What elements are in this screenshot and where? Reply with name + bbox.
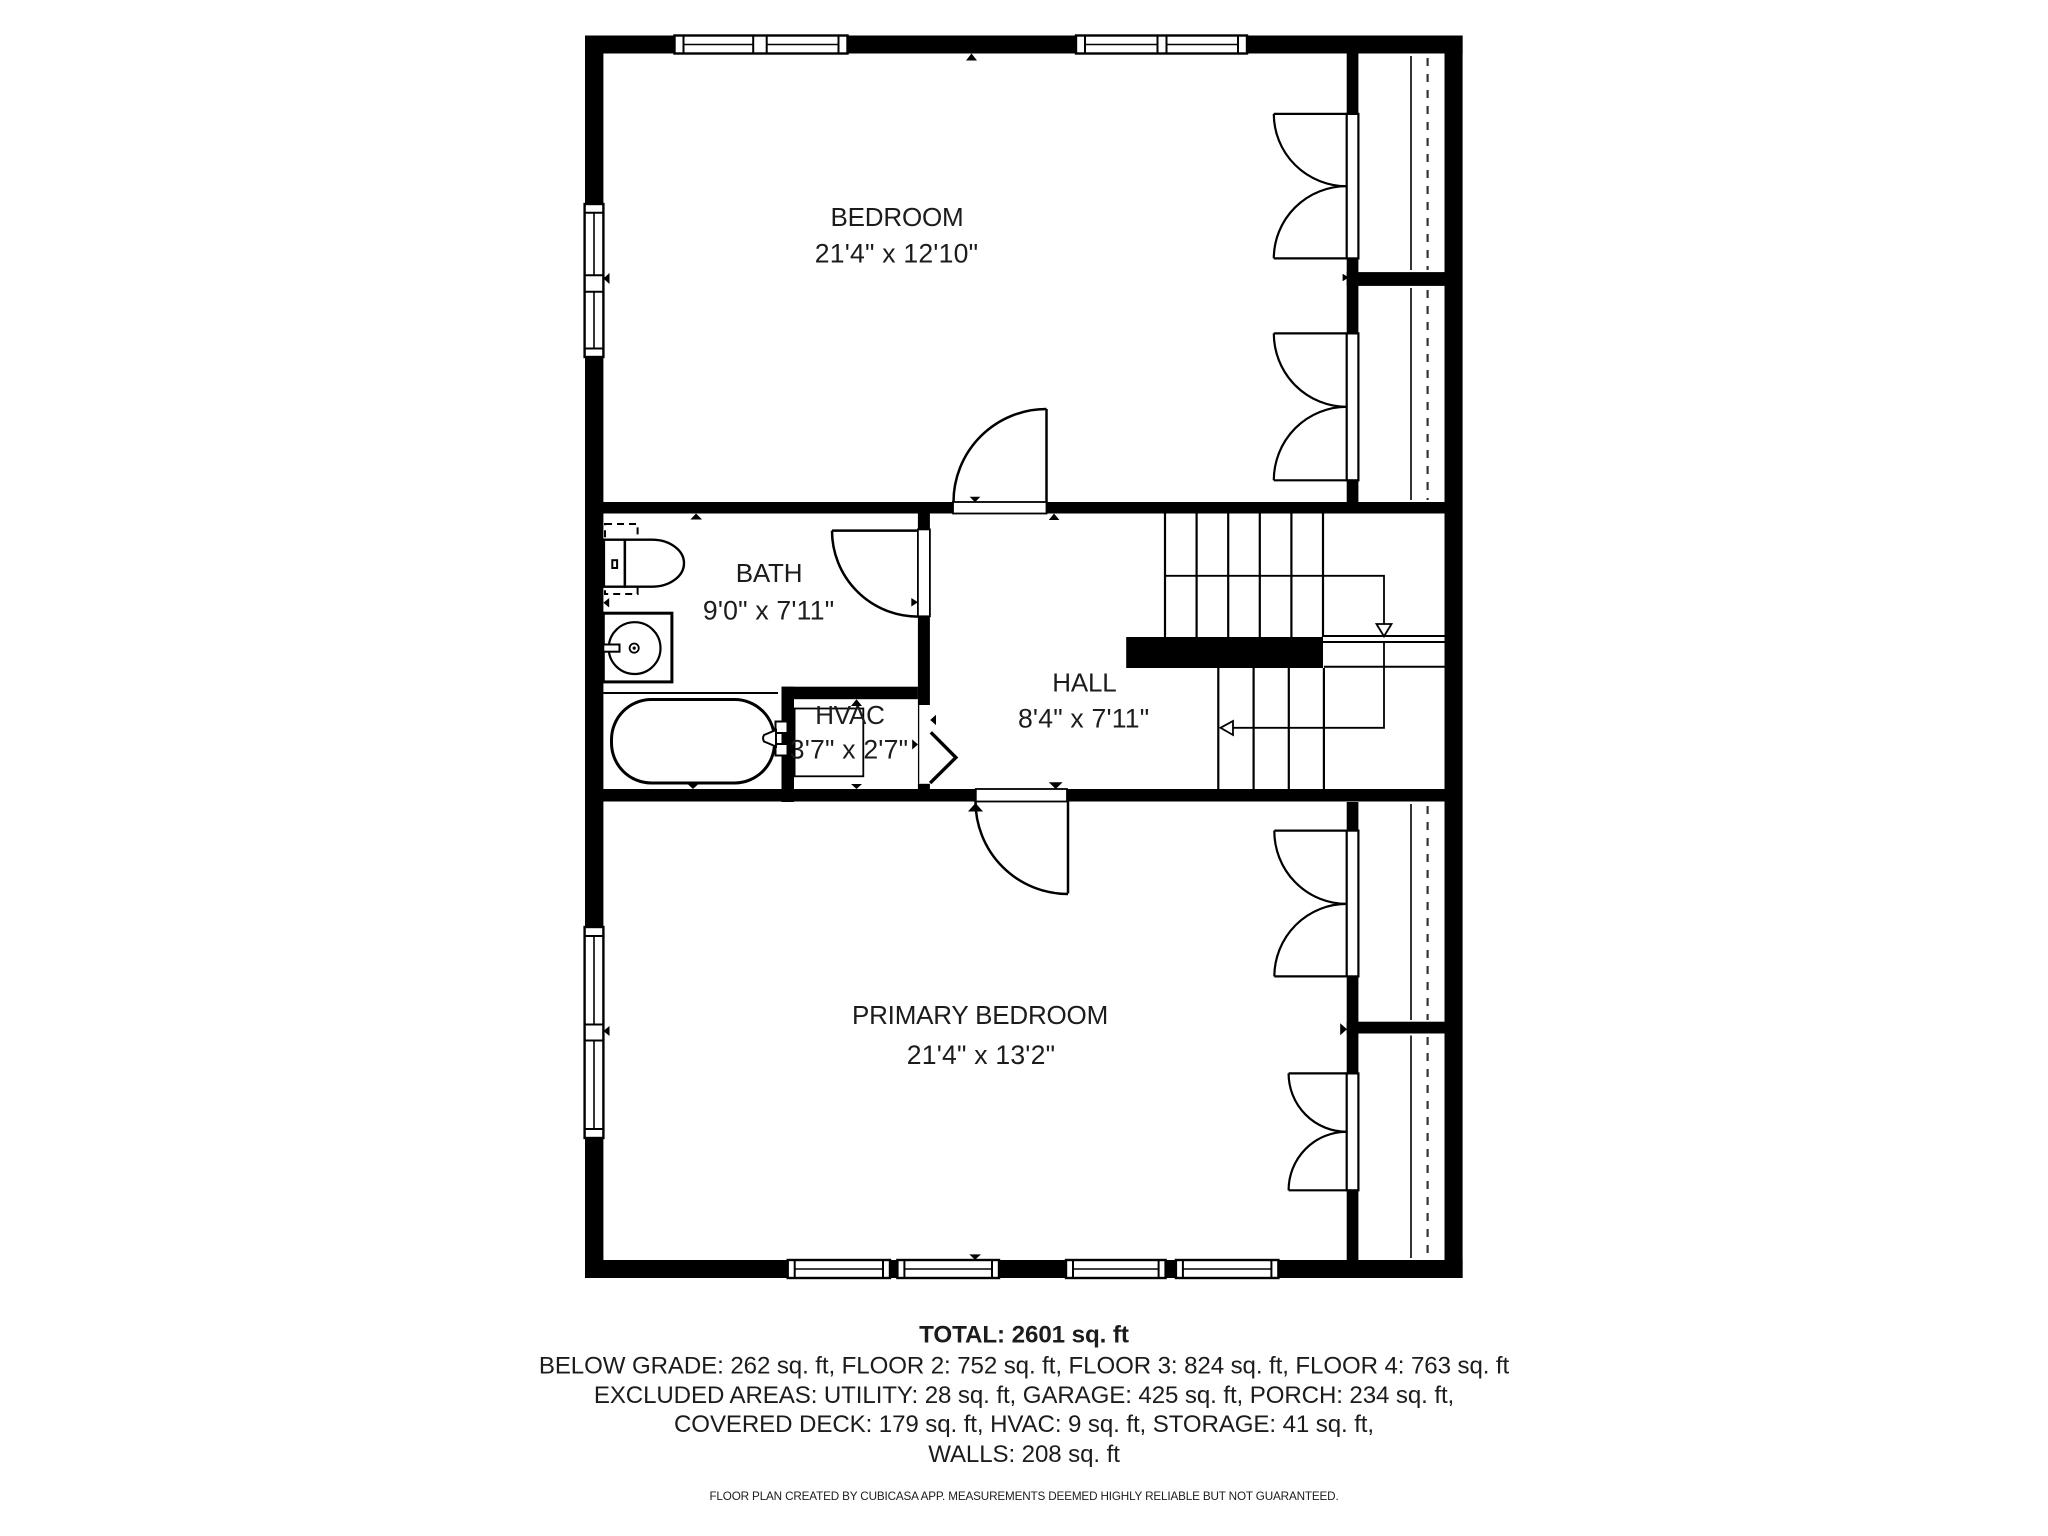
svg-text:21'4" x 12'10": 21'4" x 12'10" <box>815 239 978 269</box>
svg-text:HALL: HALL <box>1052 668 1116 698</box>
svg-text:PRIMARY BEDROOM: PRIMARY BEDROOM <box>852 1000 1108 1030</box>
svg-text:BEDROOM: BEDROOM <box>831 202 964 232</box>
svg-text:8'4" x 7'11": 8'4" x 7'11" <box>1018 703 1150 733</box>
svg-text:21'4" x 13'2": 21'4" x 13'2" <box>907 1040 1055 1070</box>
svg-text:COVERED DECK: 179 sq. ft, HVAC: COVERED DECK: 179 sq. ft, HVAC: 9 sq. ft… <box>674 1411 1374 1438</box>
svg-text:BATH: BATH <box>736 558 803 588</box>
svg-text:9'0" x 7'11": 9'0" x 7'11" <box>703 596 835 626</box>
svg-text:WALLS: 208 sq. ft: WALLS: 208 sq. ft <box>928 1441 1120 1468</box>
svg-text:BELOW GRADE: 262 sq. ft, FLOOR: BELOW GRADE: 262 sq. ft, FLOOR 2: 752 sq… <box>539 1353 1510 1380</box>
svg-text:3'7" x 2'7": 3'7" x 2'7" <box>790 735 908 765</box>
svg-text:EXCLUDED AREAS: UTILITY: 28 sq: EXCLUDED AREAS: UTILITY: 28 sq. ft, GARA… <box>594 1382 1454 1409</box>
svg-text:HVAC: HVAC <box>815 700 885 730</box>
svg-text:FLOOR PLAN CREATED BY CUBICASA: FLOOR PLAN CREATED BY CUBICASA APP. MEAS… <box>709 1490 1338 1503</box>
svg-text:TOTAL: 2601 sq. ft: TOTAL: 2601 sq. ft <box>919 1322 1129 1349</box>
